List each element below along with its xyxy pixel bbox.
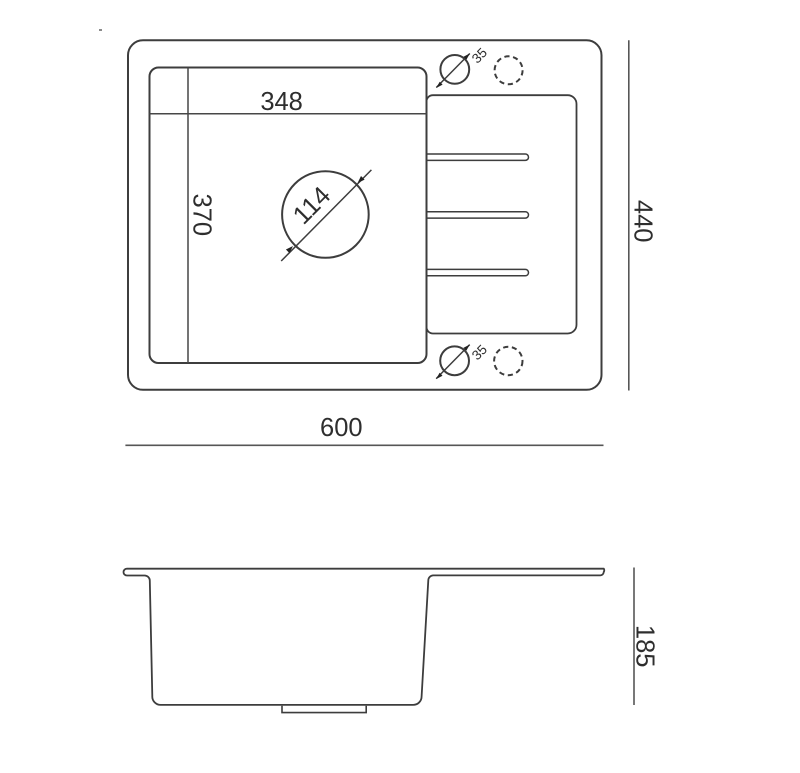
svg-text:185: 185 — [631, 625, 659, 668]
svg-text:440: 440 — [629, 200, 657, 243]
svg-text:348: 348 — [260, 88, 303, 116]
svg-text:600: 600 — [320, 414, 363, 442]
svg-text:370: 370 — [188, 194, 216, 237]
